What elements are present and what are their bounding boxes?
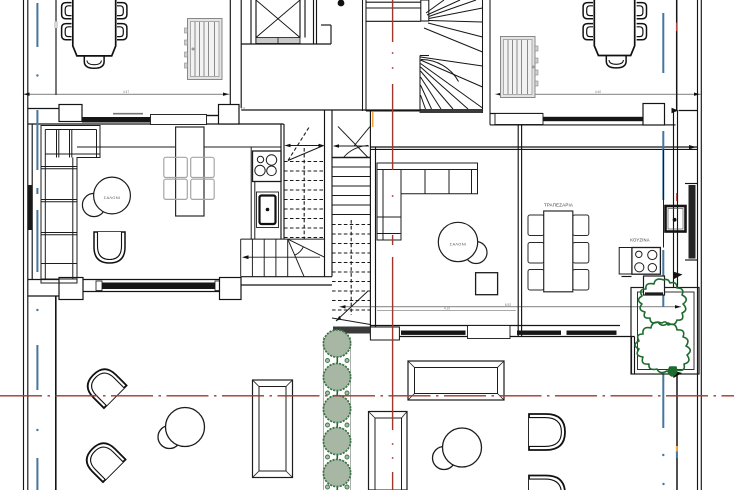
svg-text:ΤΡΑΠΕΖΑΡΙΑ: ΤΡΑΠΕΖΑΡΙΑ <box>544 203 573 208</box>
svg-text:ΣΑΛΟΝΙ: ΣΑΛΟΝΙ <box>104 195 121 200</box>
svg-text:ΚΟΥΖΙΝΑ: ΚΟΥΖΙΝΑ <box>630 238 650 243</box>
svg-text:4.10: 4.10 <box>444 307 450 311</box>
svg-text:4.47: 4.47 <box>123 90 129 94</box>
svg-text:6.92: 6.92 <box>505 303 511 307</box>
svg-text:2.0: 2.0 <box>241 106 246 110</box>
svg-text:ΣΑΛΟΝΙ: ΣΑΛΟΝΙ <box>450 241 467 246</box>
svg-text:4.40: 4.40 <box>595 90 601 94</box>
